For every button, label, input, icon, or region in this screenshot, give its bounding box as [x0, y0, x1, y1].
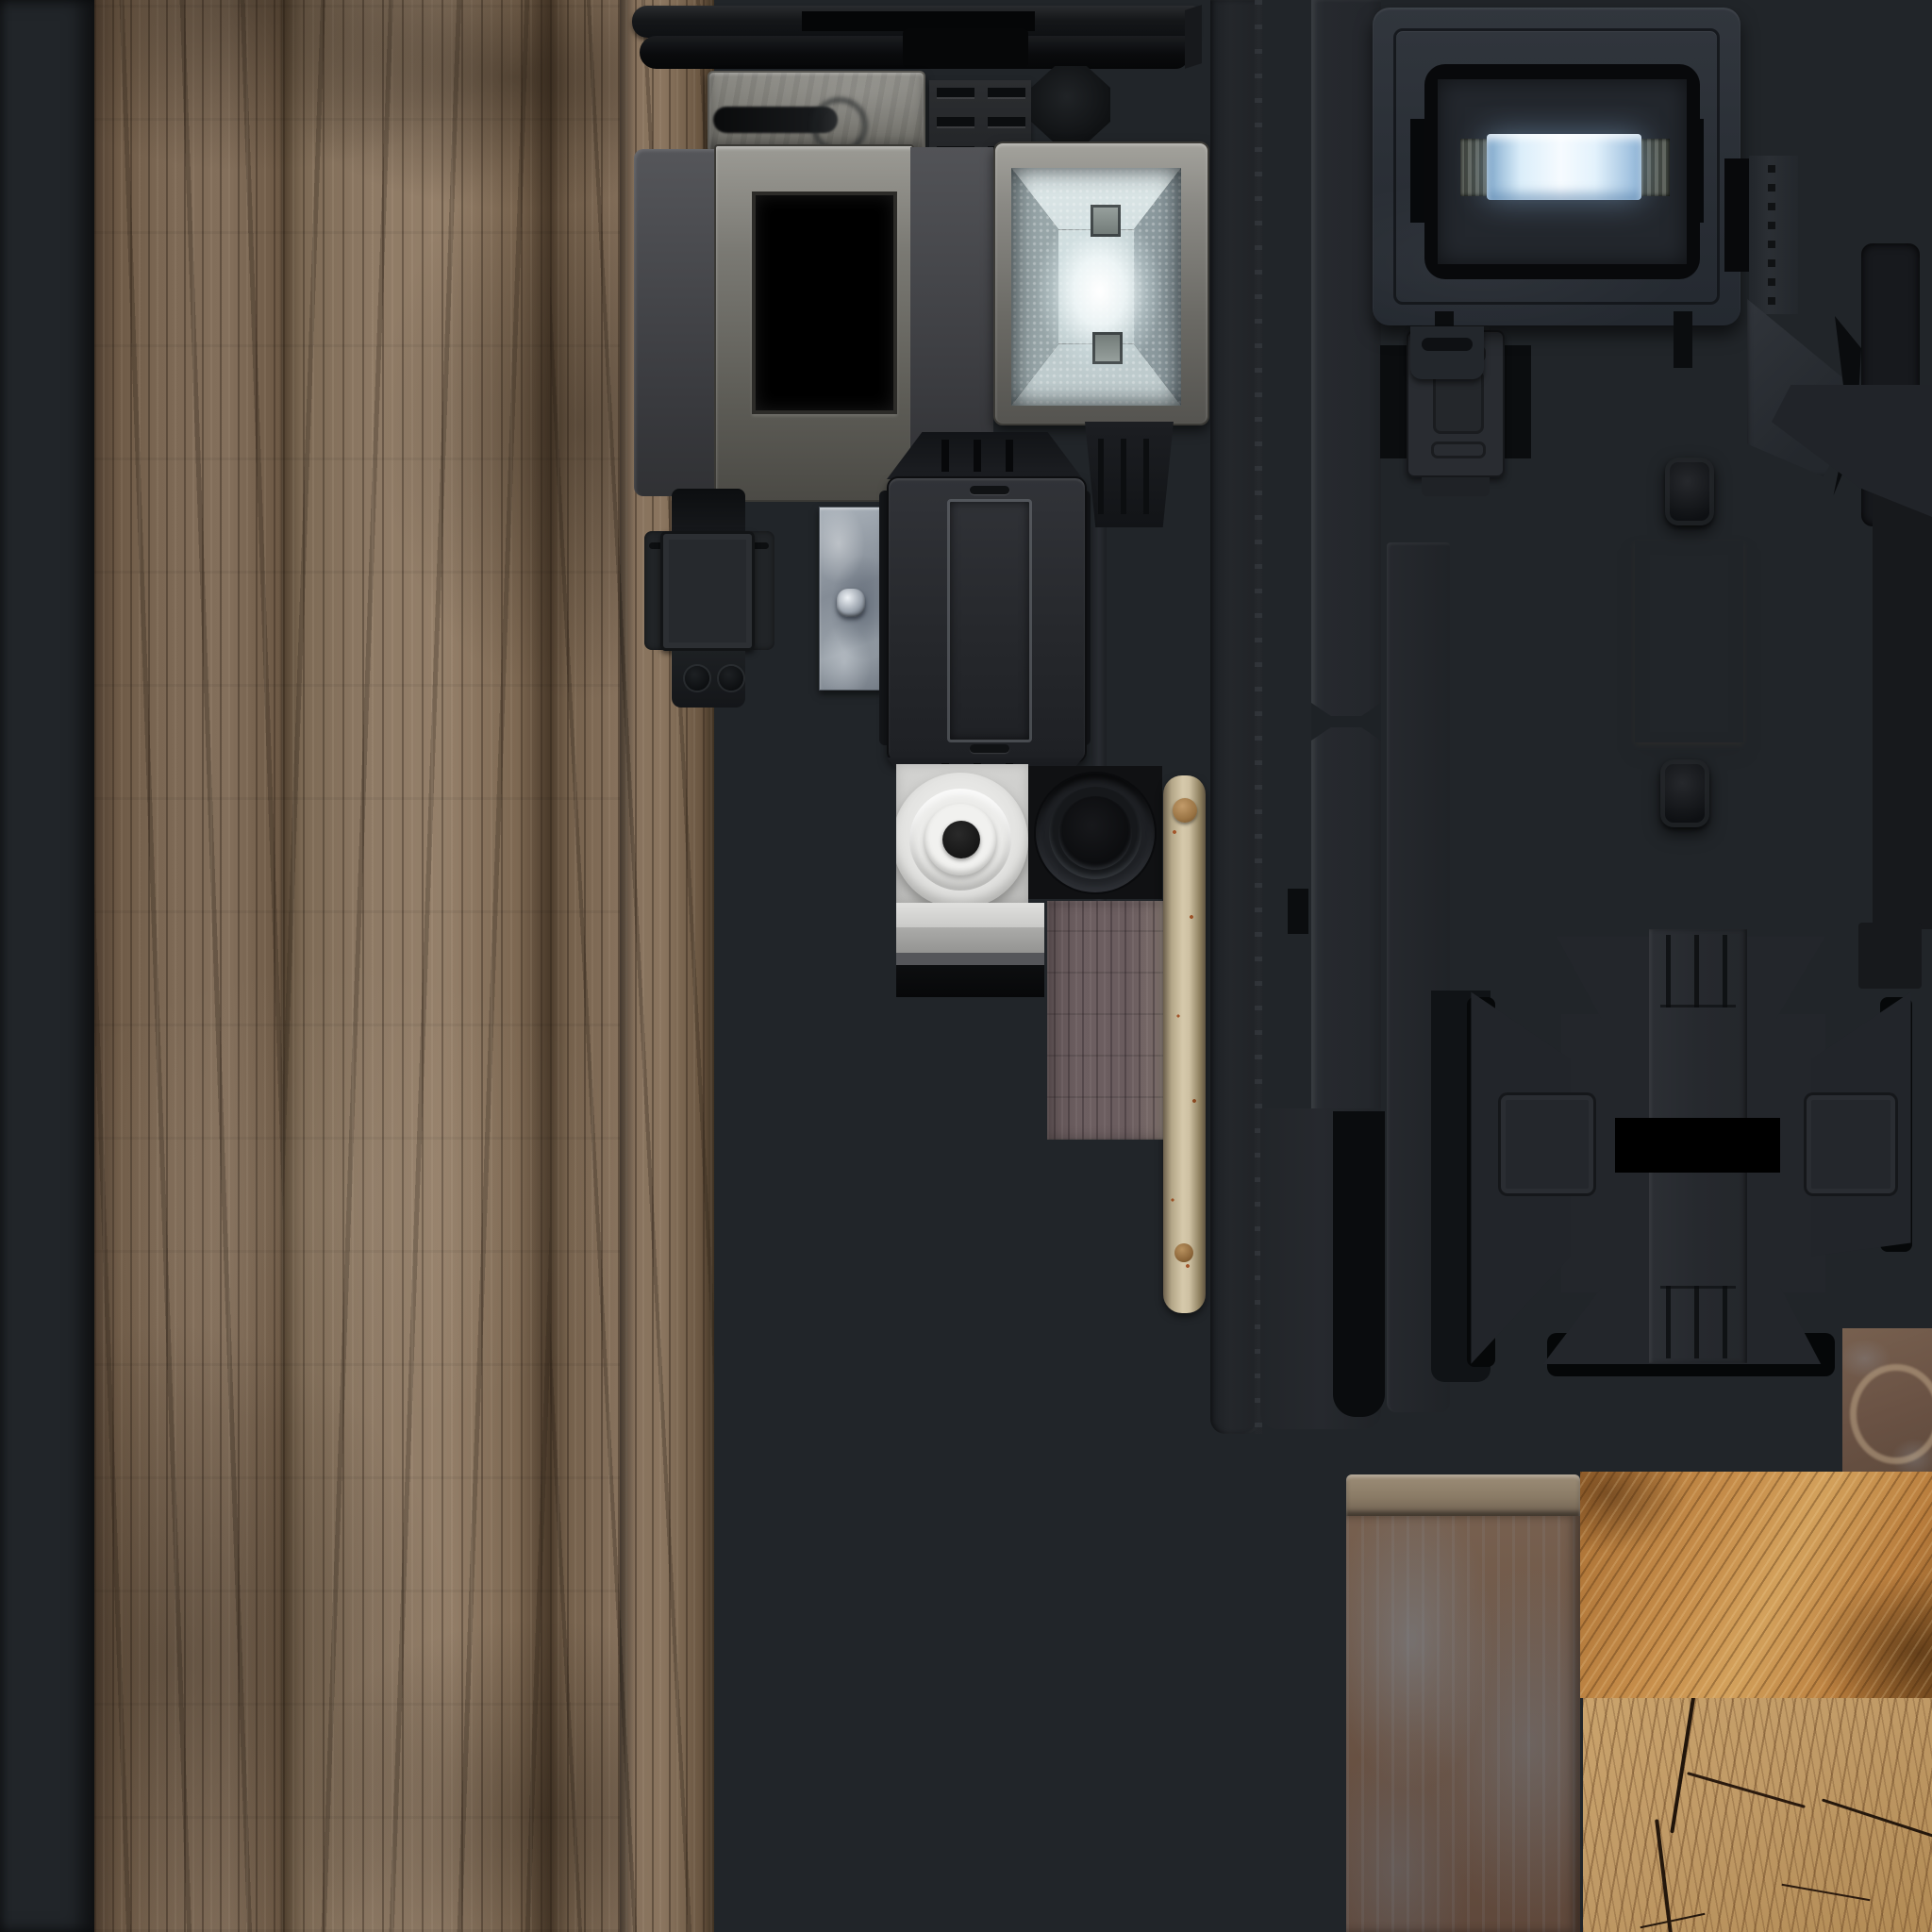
- screw: [675, 544, 691, 560]
- rust-lip: [1346, 1474, 1580, 1516]
- bracket-tab-bottom: [1422, 477, 1490, 496]
- spotlight: [993, 142, 1209, 425]
- screw: [1813, 1101, 1829, 1117]
- screw: [888, 158, 904, 174]
- hook-black: [1724, 158, 1751, 272]
- screw: [1774, 303, 1790, 319]
- fabric-strip: [0, 0, 94, 1932]
- screw-plate-left: [1498, 1092, 1596, 1196]
- box-post: [1674, 311, 1692, 368]
- vent-column-left: [634, 149, 714, 496]
- bracket-slot: [1422, 338, 1473, 351]
- stick-knob: [1173, 798, 1197, 823]
- glow-tube: [1487, 134, 1641, 200]
- screw: [1015, 521, 1031, 537]
- box-shell: [877, 432, 1092, 802]
- screw: [1684, 21, 1700, 37]
- crack: [1655, 1819, 1674, 1932]
- screw: [723, 620, 739, 636]
- window-vignette: [1011, 168, 1181, 406]
- cross-knob-bottom: [1660, 759, 1709, 827]
- flap-ribs: [1098, 439, 1160, 514]
- screw: [1803, 346, 1819, 362]
- screw: [1399, 23, 1415, 39]
- end-grain-fix: [1583, 1698, 1932, 1932]
- hex-bolt: [837, 589, 865, 617]
- bracket-square: [1433, 370, 1484, 434]
- screw: [1507, 1101, 1524, 1117]
- spotlight-flap: [1085, 422, 1174, 527]
- clamp-foot: [685, 666, 709, 691]
- screw: [1874, 1101, 1890, 1117]
- rust-body: [1346, 1516, 1580, 1932]
- cone-center: [942, 821, 980, 858]
- tube-bracket-right: [1640, 139, 1670, 196]
- crack: [1782, 1884, 1871, 1901]
- screw: [949, 521, 965, 537]
- screw: [1721, 1042, 1737, 1058]
- purple-plank: [1047, 901, 1163, 1140]
- screw: [1721, 1229, 1737, 1245]
- screw: [904, 79, 920, 95]
- vent-slots: [910, 147, 961, 451]
- screw: [969, 157, 985, 173]
- pill-panel: [708, 71, 925, 153]
- box-slot: [970, 744, 1009, 753]
- crack: [1670, 1698, 1695, 1833]
- box-slot: [970, 486, 1009, 494]
- cross-center-plate: [1635, 541, 1743, 742]
- wood-edge-seam: [620, 0, 635, 1932]
- ring-mark: [1850, 1364, 1932, 1464]
- screw: [725, 158, 741, 174]
- crack: [1687, 1772, 1806, 1808]
- texture-atlas: [0, 0, 1932, 1932]
- box-face: [887, 476, 1087, 763]
- screw: [1397, 296, 1413, 312]
- screw: [949, 703, 965, 719]
- cross-knob-top: [1665, 458, 1714, 525]
- screw: [722, 80, 738, 96]
- vent-slots: [634, 149, 683, 451]
- rust-ring-square: [1842, 1328, 1932, 1481]
- black-speaker: [1028, 766, 1162, 899]
- screw: [650, 14, 666, 30]
- screw: [1002, 157, 1018, 173]
- screw: [1572, 1101, 1588, 1117]
- screw: [650, 42, 666, 58]
- screw: [723, 544, 739, 560]
- top-rail-dark-mass: [903, 28, 1028, 68]
- screw: [1015, 703, 1031, 719]
- screw: [725, 471, 741, 487]
- clamp-flap-bottom: [672, 651, 745, 708]
- bar-dark: [896, 953, 1044, 965]
- bracket-stub: [1749, 156, 1798, 314]
- screw: [1184, 396, 1200, 412]
- crack: [1641, 1913, 1706, 1929]
- dark-cross: [1467, 929, 1915, 1377]
- crack: [1822, 1798, 1932, 1841]
- screw: [1684, 294, 1700, 310]
- bar-light: [896, 903, 1044, 927]
- screw: [1572, 1171, 1588, 1187]
- bar-black: [896, 965, 1044, 997]
- cone-center: [1058, 796, 1132, 870]
- clamp-bracket: [644, 489, 776, 708]
- octagon-knob: [1031, 66, 1110, 143]
- screw: [1807, 406, 1824, 422]
- screw: [1169, 13, 1185, 29]
- black-center-band: [1615, 1118, 1780, 1173]
- stub-ribs: [1768, 165, 1775, 307]
- screw: [644, 159, 660, 175]
- top-rail-end-cap: [1185, 5, 1202, 69]
- clamp-center: [660, 531, 755, 651]
- screw: [1662, 1229, 1678, 1245]
- perforated-cross: [1509, 432, 1868, 946]
- screw: [1662, 1042, 1678, 1058]
- screw: [1874, 1171, 1890, 1187]
- screw: [1507, 1171, 1524, 1187]
- grey-bars: [896, 903, 1044, 997]
- screen-window: [752, 192, 897, 414]
- black-slot-d: [1333, 1111, 1385, 1417]
- wood-weathering: [94, 0, 620, 1932]
- stick-bump: [1174, 1243, 1193, 1262]
- blue-light-box: [1373, 8, 1740, 325]
- bracket-slot: [1431, 441, 1486, 458]
- screw-plate-right: [1804, 1092, 1898, 1196]
- screw: [1184, 157, 1200, 173]
- clamp-flap-top: [672, 489, 745, 536]
- rough-wood: [1580, 1472, 1932, 1698]
- small-dark-rect: [1858, 923, 1922, 989]
- screw: [1002, 396, 1018, 412]
- flap-ribs: [941, 440, 1028, 472]
- black-slot-tab: [1288, 889, 1308, 934]
- under-bracket: [1410, 326, 1484, 379]
- spotlight-window: [1011, 168, 1181, 406]
- box-flap-top: [887, 432, 1083, 479]
- wood-planks: [94, 0, 620, 1932]
- birch-stick: [1163, 775, 1206, 1313]
- screw: [1169, 40, 1185, 56]
- screw: [1813, 1171, 1829, 1187]
- rust-panel: [1346, 1474, 1580, 1932]
- channel-bar-a: [1210, 0, 1260, 1434]
- column-ribs-top: [1660, 935, 1736, 1008]
- white-speaker: [896, 764, 1028, 903]
- rail-b: [1311, 0, 1381, 1113]
- galvanized-plate: [819, 507, 883, 691]
- bar-mid: [896, 927, 1044, 953]
- column-ribs-bottom: [1660, 1286, 1736, 1358]
- clamp-foot: [719, 666, 743, 691]
- screw: [675, 620, 691, 636]
